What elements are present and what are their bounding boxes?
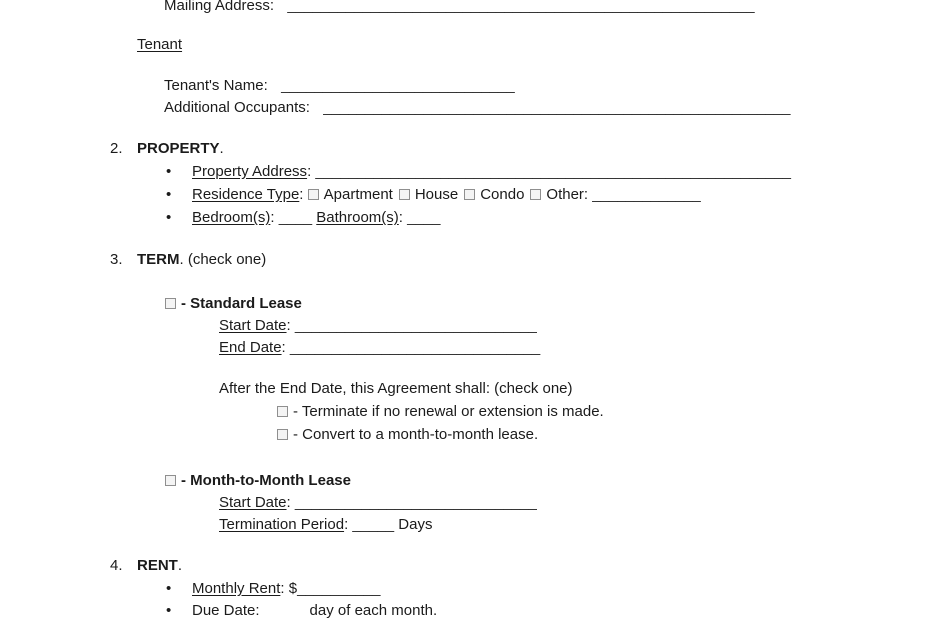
bathroom-label: Bathroom(s) — [316, 209, 399, 226]
additional-occupants-label: Additional Occupants: — [164, 99, 310, 116]
mailing-address-line: Mailing Address: _______________________… — [164, 0, 755, 15]
bullet-icon: • — [166, 185, 192, 204]
apartment-option-label: Apartment — [324, 186, 393, 203]
term-check-one-note: (check one) — [188, 251, 266, 268]
other-residence-blank[interactable]: _____________ — [592, 186, 700, 203]
property-address-label: Property Address — [192, 163, 307, 180]
property-address-line: •Property Address: _____________________… — [166, 162, 791, 181]
standard-end-date-label: End Date — [219, 339, 282, 356]
apartment-checkbox-icon[interactable] — [308, 189, 319, 200]
tenant-name-line: Tenant's Name: _________________________… — [164, 76, 515, 95]
bedroom-blank[interactable]: ____ — [279, 209, 312, 226]
additional-occupants-blank[interactable]: ________________________________________… — [323, 99, 790, 116]
monthly-rent-blank[interactable]: __________ — [297, 580, 380, 597]
tenant-name-blank[interactable]: ____________________________ — [281, 77, 515, 94]
after-end-date-note: After the End Date, this Agreement shall… — [219, 379, 573, 398]
section-property-heading: 2.PROPERTY. — [110, 139, 224, 158]
condo-option-label: Condo — [480, 186, 524, 203]
m2m-start-date-label: Start Date — [219, 494, 287, 511]
standard-lease-label: - Standard Lease — [181, 295, 302, 312]
month-to-month-label: - Month-to-Month Lease — [181, 472, 351, 489]
monthly-rent-currency: $ — [289, 580, 297, 597]
additional-occupants-line: Additional Occupants: __________________… — [164, 98, 790, 117]
other-checkbox-icon[interactable] — [530, 189, 541, 200]
bedroom-bathroom-line: •Bedroom(s): ____ Bathroom(s): ____ — [166, 208, 441, 227]
m2m-start-date-line: Start Date: ____________________________… — [219, 493, 537, 512]
standard-start-date-label: Start Date — [219, 317, 287, 334]
convert-checkbox-icon[interactable] — [277, 429, 288, 440]
section-term-title: TERM — [137, 251, 180, 268]
section-rent-title: RENT — [137, 557, 178, 574]
standard-end-date-line: End Date: ______________________________ — [219, 338, 540, 357]
terminate-option-label: - Terminate if no renewal or extension i… — [293, 403, 604, 420]
bullet-icon: • — [166, 601, 192, 620]
tenant-heading: Tenant — [137, 35, 182, 54]
bathroom-blank[interactable]: ____ — [407, 209, 440, 226]
mailing-address-blank[interactable]: ________________________________________… — [287, 0, 754, 14]
condo-checkbox-icon[interactable] — [464, 189, 475, 200]
section-rent-number: 4. — [110, 556, 137, 575]
convert-option: - Convert to a month-to-month lease. — [277, 425, 538, 444]
residence-type-label: Residence Type — [192, 186, 299, 203]
termination-period-suffix: Days — [398, 516, 432, 533]
tenant-heading-label: Tenant — [137, 36, 182, 53]
bedroom-label: Bedroom(s) — [192, 209, 270, 226]
section-term-number: 3. — [110, 250, 137, 269]
termination-period-label: Termination Period — [219, 516, 344, 533]
standard-end-date-blank[interactable]: ______________________________ — [290, 339, 540, 356]
property-address-blank[interactable]: ________________________________________… — [315, 163, 791, 180]
section-rent-heading: 4.RENT. — [110, 556, 182, 575]
section-property-title: PROPERTY — [137, 140, 220, 157]
monthly-rent-line: •Monthly Rent: $__________ — [166, 579, 381, 598]
standard-start-date-blank[interactable]: _____________________________ — [295, 317, 537, 334]
standard-start-date-line: Start Date: ____________________________… — [219, 316, 537, 335]
m2m-start-date-blank[interactable]: _____________________________ — [295, 494, 537, 511]
section-term-heading: 3.TERM. (check one) — [110, 250, 266, 269]
bullet-icon: • — [166, 579, 192, 598]
due-date-label: Due Date: — [192, 602, 260, 619]
standard-lease-option: - Standard Lease — [165, 294, 302, 313]
terminate-option: - Terminate if no renewal or extension i… — [277, 402, 604, 421]
termination-period-blank[interactable]: _____ — [352, 516, 394, 533]
section-property-number: 2. — [110, 139, 137, 158]
terminate-checkbox-icon[interactable] — [277, 406, 288, 417]
due-date-suffix: day of each month. — [310, 602, 438, 619]
bullet-icon: • — [166, 208, 192, 227]
due-date-line: •Due Date:day of each month. — [166, 601, 437, 620]
house-checkbox-icon[interactable] — [399, 189, 410, 200]
tenant-name-label: Tenant's Name: — [164, 77, 268, 94]
month-to-month-checkbox-icon[interactable] — [165, 475, 176, 486]
month-to-month-option: - Month-to-Month Lease — [165, 471, 351, 490]
house-option-label: House — [415, 186, 458, 203]
convert-option-label: - Convert to a month-to-month lease. — [293, 426, 538, 443]
monthly-rent-label: Monthly Rent — [192, 580, 280, 597]
termination-period-line: Termination Period: _____ Days — [219, 515, 432, 534]
mailing-address-label: Mailing Address: — [164, 0, 274, 14]
bullet-icon: • — [166, 162, 192, 181]
other-option-label: Other — [546, 186, 584, 203]
standard-lease-checkbox-icon[interactable] — [165, 298, 176, 309]
residence-type-line: •Residence Type: ApartmentHouseCondoOthe… — [166, 185, 701, 204]
